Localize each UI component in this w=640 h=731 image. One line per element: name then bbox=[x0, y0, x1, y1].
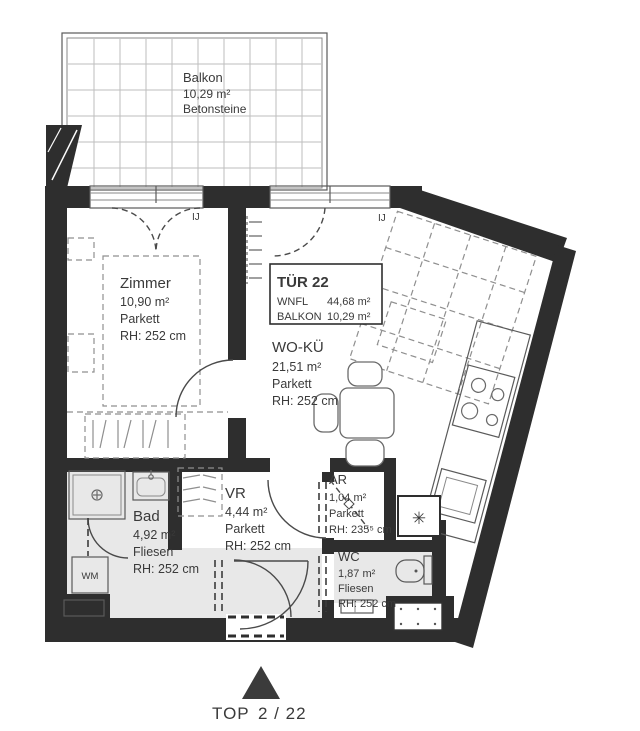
room-area-zimmer: 10,90 m² bbox=[120, 295, 169, 309]
dining-set bbox=[314, 362, 394, 466]
sink-basin bbox=[439, 477, 478, 514]
floorplan-page: Balkon 10,29 m² Betonsteine bbox=[0, 0, 640, 731]
nightstand-outline bbox=[68, 238, 94, 260]
room-height-ar: RH: 235⁵ cm bbox=[329, 524, 392, 536]
room-height-zimmer: RH: 252 cm bbox=[120, 329, 186, 343]
room-height-woku: RH: 252 cm bbox=[272, 394, 338, 408]
water-heater: ✳ bbox=[398, 496, 440, 536]
wall-top-slanted bbox=[400, 186, 567, 263]
footer-top-value: 2 / 22 bbox=[258, 704, 307, 723]
room-area-wc: 1,87 m² bbox=[338, 568, 376, 580]
wardrobe-outline bbox=[85, 414, 185, 458]
wall-zimmer-woku-upper bbox=[228, 208, 246, 360]
room-area-balkon: 10,29 m² bbox=[183, 87, 230, 101]
window-mark-left: IJ bbox=[192, 212, 200, 223]
room-floor-ar: Parkett bbox=[329, 508, 364, 520]
wall-top-a bbox=[45, 186, 90, 208]
unit-row-value: 10,29 m² bbox=[327, 311, 371, 323]
radiator-symbol bbox=[247, 216, 262, 284]
wall-left bbox=[45, 186, 67, 622]
balcony-french-door-left bbox=[112, 208, 156, 252]
room-name-wc: WC bbox=[338, 549, 360, 564]
chair bbox=[348, 362, 382, 386]
room-floor-vr: Parkett bbox=[225, 522, 265, 536]
room-floor-bad: Fliesen bbox=[133, 545, 173, 559]
nightstand-outline bbox=[68, 334, 94, 372]
room-name-zimmer: Zimmer bbox=[120, 275, 171, 292]
room-height-vr: RH: 252 cm bbox=[225, 539, 291, 553]
room-name-woku: WO-KÜ bbox=[272, 338, 324, 356]
room-name-ar: AR bbox=[329, 472, 347, 487]
room-area-ar: 1,04 m² bbox=[329, 492, 367, 504]
wall-vr-stub-bottom bbox=[322, 600, 334, 618]
zimmer-window bbox=[90, 186, 203, 208]
burner bbox=[460, 401, 480, 421]
room-name-balkon: Balkon bbox=[183, 70, 223, 85]
footer-top-label: TOP bbox=[212, 704, 250, 723]
heater-symbol: ✳ bbox=[412, 509, 426, 528]
room-height-bad: RH: 252 cm bbox=[133, 562, 199, 576]
balcony: Balkon 10,29 m² Betonsteine bbox=[62, 33, 327, 190]
room-floor-wc: Fliesen bbox=[338, 583, 373, 595]
unit-row-label: WNFL bbox=[277, 296, 308, 308]
unit-row-label: BALKON bbox=[277, 311, 322, 323]
burner bbox=[470, 377, 487, 394]
wall-top-b bbox=[203, 186, 270, 208]
burner bbox=[485, 413, 498, 426]
washing-machine-label: WM bbox=[82, 571, 99, 582]
chair bbox=[346, 440, 384, 466]
room-floor-woku: Parkett bbox=[272, 377, 312, 391]
room-name-bad: Bad bbox=[133, 508, 160, 525]
room-area-woku: 21,51 m² bbox=[272, 360, 321, 374]
floorplan-svg: Balkon 10,29 m² Betonsteine bbox=[0, 0, 640, 731]
unit-title: TÜR 22 bbox=[277, 274, 329, 291]
room-floor-zimmer: Parkett bbox=[120, 312, 160, 326]
burner bbox=[490, 387, 505, 402]
unit-info-box: TÜR 22 WNFL 44,68 m² BALKON 10,29 m² bbox=[270, 264, 382, 324]
wall-vr-stub-mid bbox=[322, 538, 334, 554]
zimmer-door-arc bbox=[176, 360, 233, 417]
room-floor-balkon: Betonsteine bbox=[183, 102, 247, 116]
footer: TOP 2 / 22 bbox=[212, 666, 307, 723]
vr-woku-door-arc bbox=[268, 480, 326, 538]
woku-balcony-door bbox=[273, 208, 325, 256]
dining-table bbox=[340, 388, 394, 438]
north-triangle bbox=[242, 666, 280, 699]
room-area-vr: 4,44 m² bbox=[225, 505, 267, 519]
vr-wardrobe bbox=[178, 468, 222, 516]
niche-surround bbox=[58, 594, 110, 622]
unit-row-value: 44,68 m² bbox=[327, 296, 371, 308]
ceiling-projection-inner bbox=[377, 302, 446, 363]
window-mark-right: IJ bbox=[378, 213, 386, 224]
zimmer-furniture bbox=[67, 238, 228, 458]
wall-mid-horizontal bbox=[45, 458, 270, 472]
room-height-wc: RH: 252 cm bbox=[338, 598, 396, 610]
room-name-vr: VR bbox=[225, 485, 246, 502]
installation-shaft bbox=[394, 603, 442, 630]
wall-right-slanted bbox=[452, 245, 576, 648]
vr-wardrobe-hatch bbox=[183, 475, 216, 502]
room-area-bad: 4,92 m² bbox=[133, 528, 175, 542]
wardrobe-hatch bbox=[93, 420, 168, 448]
wall-zimmer-woku-lower bbox=[228, 418, 246, 464]
